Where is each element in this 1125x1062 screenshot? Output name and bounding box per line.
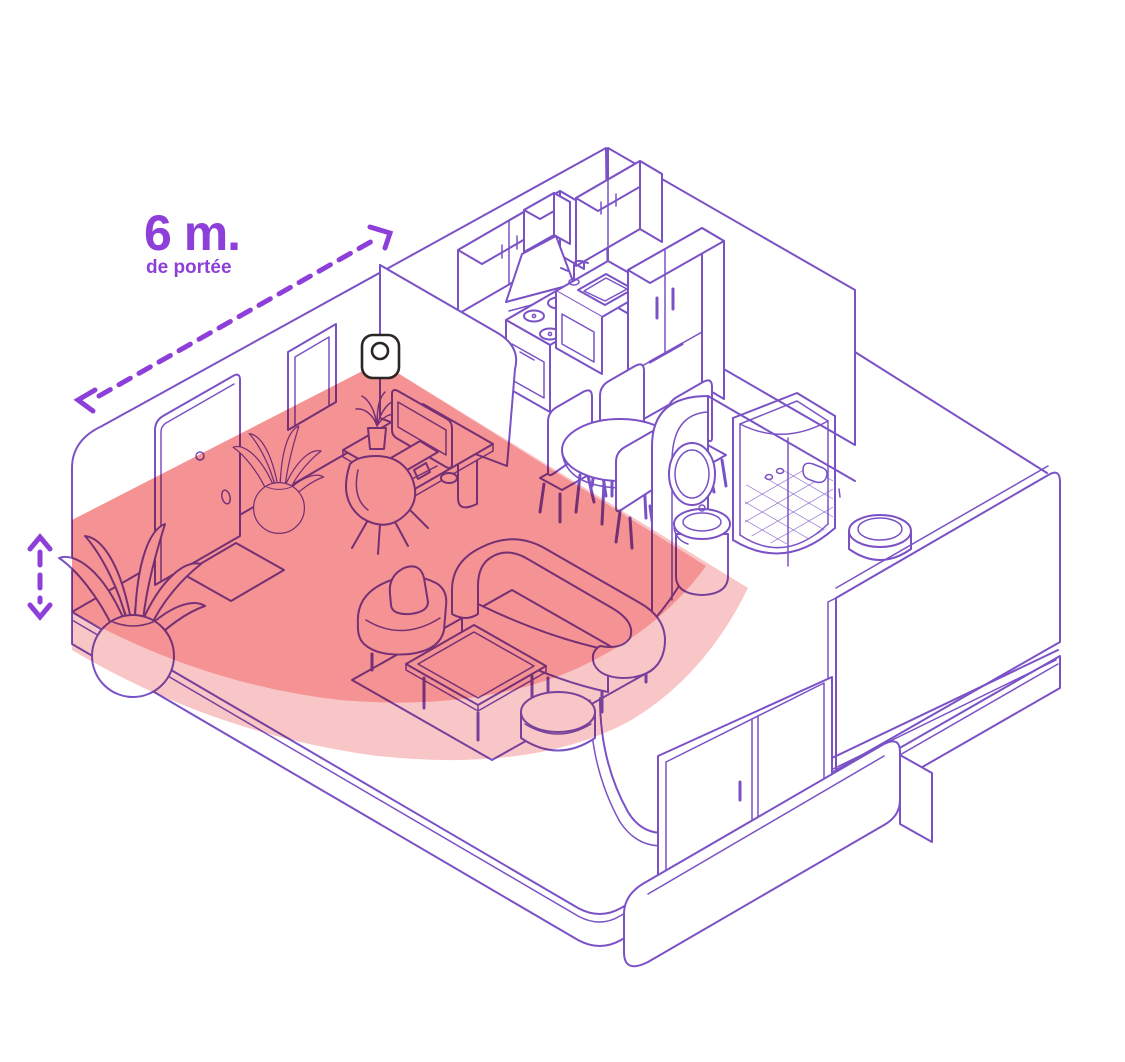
motion-sensor (362, 335, 399, 378)
height-arrow-vertical (30, 537, 50, 617)
apartment-range-illustration: 6 m. de portée (0, 0, 1125, 1062)
right-side-wall (855, 352, 1047, 473)
bathroom-mirror (669, 443, 715, 505)
sensor-lens (372, 343, 388, 359)
range-value-label: 6 m. (144, 205, 240, 261)
toilet (849, 515, 911, 560)
range-caption-label: de portée (146, 257, 232, 278)
isometric-apartment-scene: 6 m. de portée (0, 0, 1125, 1062)
